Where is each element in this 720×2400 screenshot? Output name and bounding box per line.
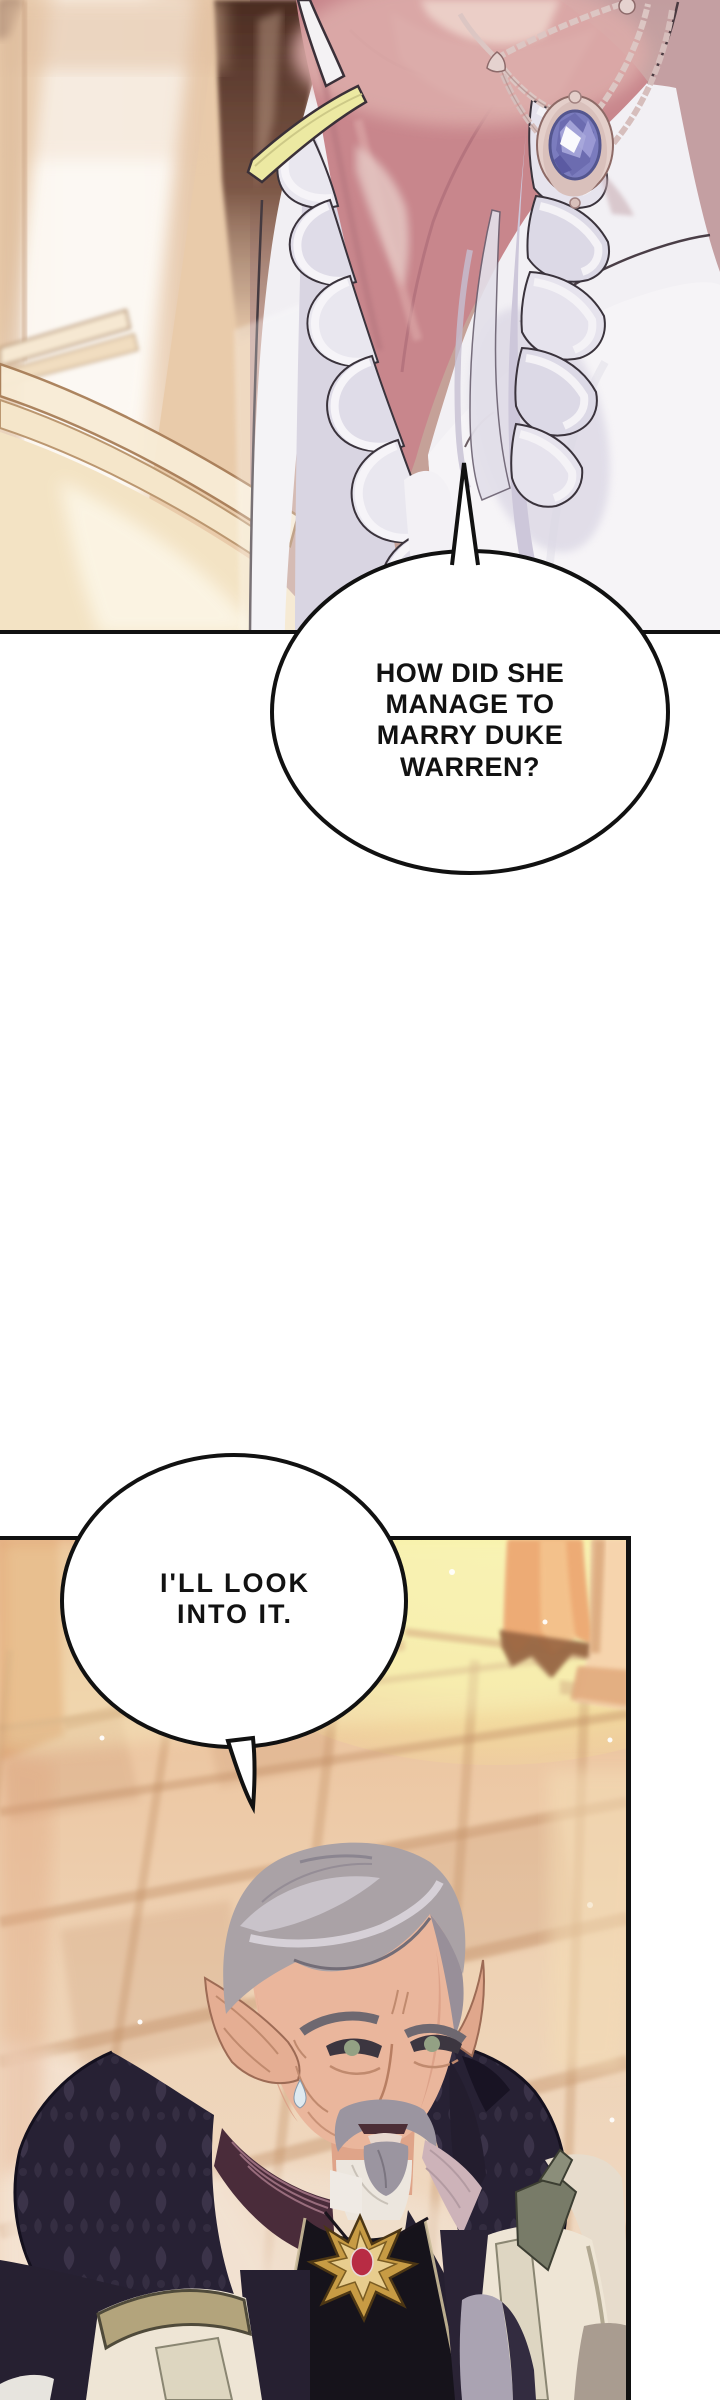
svg-text:HOW DID SHE: HOW DID SHE: [376, 658, 565, 688]
svg-text:INTO IT.: INTO IT.: [177, 1599, 293, 1629]
svg-text:MANAGE TO: MANAGE TO: [385, 689, 554, 719]
svg-text:MARRY DUKE: MARRY DUKE: [377, 720, 564, 750]
svg-text:WARREN?: WARREN?: [400, 752, 540, 782]
svg-text:I'LL LOOK: I'LL LOOK: [160, 1568, 310, 1598]
